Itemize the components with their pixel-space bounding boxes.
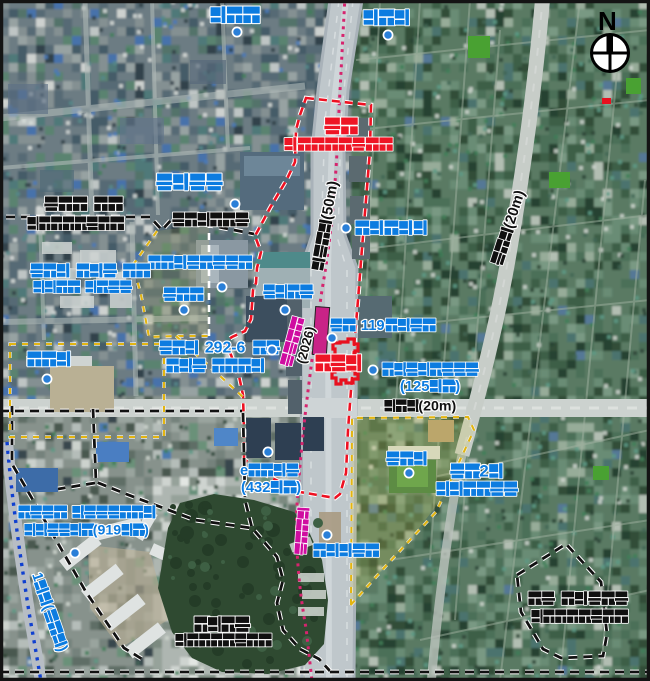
svg-text:): ) <box>455 379 460 395</box>
svg-text:2: 2 <box>479 461 488 480</box>
svg-text:): ) <box>296 480 301 496</box>
svg-text:e: e <box>240 463 248 479</box>
svg-text:(919: (919 <box>93 522 122 538</box>
svg-text:): ) <box>144 522 149 538</box>
svg-text:(125: (125 <box>400 379 429 395</box>
svg-text:292-6: 292-6 <box>205 340 246 357</box>
svg-text:N: N <box>598 6 617 36</box>
svg-text:(432: (432 <box>241 480 270 496</box>
svg-text:(20m): (20m) <box>418 398 456 414</box>
svg-text:119: 119 <box>361 318 385 334</box>
